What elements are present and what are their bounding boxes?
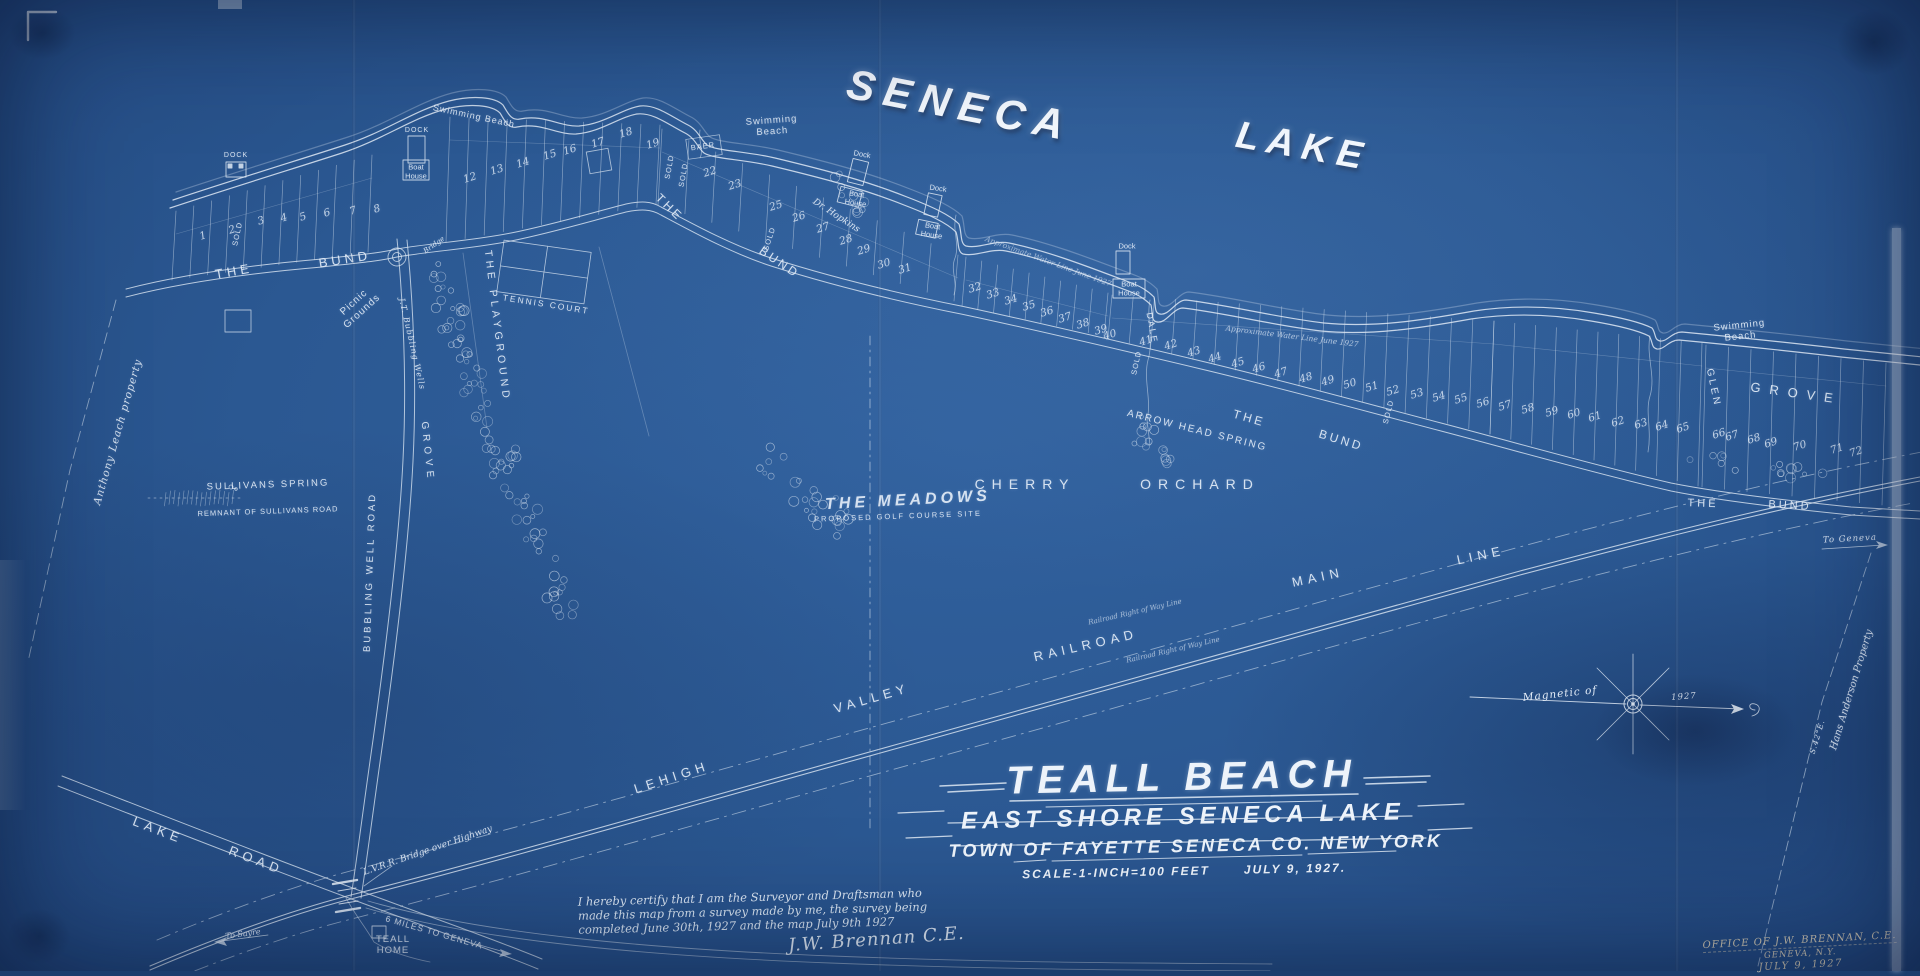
lot-number-60: 60 (1566, 406, 1582, 422)
map-label-lvrr-bridge: L.V.R.R. Bridge over Highway (362, 824, 494, 878)
lot-number-31: 31 (897, 261, 913, 277)
lot-number-55: 55 (1453, 391, 1469, 407)
map-label-boathouse-label-4: Boat House (920, 221, 944, 241)
lot-number-3: 3 (256, 214, 266, 228)
map-label-the-bund-3-the: THE (1231, 408, 1267, 430)
lot-number-52: 52 (1385, 383, 1401, 399)
lot-number-56: 56 (1475, 395, 1491, 411)
lot-number-64: 64 (1654, 418, 1670, 434)
lot-number-38: 38 (1075, 316, 1091, 332)
lot-number-71: 71 (1829, 441, 1845, 457)
map-label-railroad-lehigh: LEHIGH (632, 759, 711, 797)
map-label-grove-right: GROVE (1749, 380, 1842, 408)
lot-number-37: 37 (1057, 310, 1073, 326)
map-label-bubbling-wells-grove: J.T. Bubbling Wells (397, 297, 427, 391)
lot-number-62: 62 (1610, 414, 1626, 430)
lot-number-59: 59 (1544, 404, 1560, 420)
lot-number-58: 58 (1520, 401, 1536, 417)
lot-number-48: 48 (1298, 370, 1314, 386)
map-label-dock-label-3: Dock (853, 149, 871, 160)
map-label-water-line-2: Approximate Water Line June 1927 (1225, 325, 1359, 350)
map-label-dock-label-1: DOCK (224, 152, 248, 160)
lot-number-25: 25 (768, 198, 784, 214)
lot-number-18: 18 (618, 125, 634, 141)
lot-number-5: 5 (298, 210, 308, 224)
lot-number-28: 28 (838, 232, 854, 248)
lot-number-63: 63 (1633, 416, 1649, 432)
map-label-the-bund-4-the: THE (1687, 497, 1718, 511)
map-label-teall-home: TEALL HOME (376, 935, 410, 957)
lot-number-1: 1 (198, 229, 208, 243)
lot-number-14: 14 (515, 155, 531, 171)
map-title: TEALL BEACH (947, 751, 1418, 805)
lot-number-16: 16 (562, 142, 578, 158)
lot-number-27: 27 (815, 220, 831, 236)
lot-number-61: 61 (1587, 409, 1603, 425)
lot-number-70: 70 (1792, 438, 1808, 454)
lot-number-67: 67 (1724, 428, 1740, 444)
lot-number-36: 36 (1039, 304, 1055, 320)
map-label-railroad-main: MAIN (1291, 565, 1345, 591)
lot-number-53: 53 (1409, 386, 1425, 402)
lot-number-6: 6 (322, 206, 332, 220)
map-label-the-bund-4-bund: BUND (1768, 499, 1812, 514)
date-text: JULY 9, 1927. (1244, 861, 1347, 877)
map-subtitle-1: EAST SHORE SENECA LAKE (948, 798, 1418, 836)
map-label-bubbling-wells-grove-2: GROVE (418, 421, 436, 483)
map-label-glen: GLEN (1703, 368, 1722, 409)
lot-number-47: 47 (1273, 365, 1289, 381)
map-label-bearing-s42e: S.42°E. (1809, 719, 1828, 755)
lot-number-46: 46 (1251, 360, 1267, 376)
map-label-leach-property: Anthony Leach property (91, 358, 144, 507)
map-label-swimming-beach-3: Swimming Beach (1713, 318, 1767, 345)
lot-number-49: 49 (1320, 373, 1336, 389)
lot-number-54: 54 (1431, 389, 1447, 405)
lot-number-12: 12 (462, 170, 478, 186)
lot-number-43: 43 (1186, 344, 1202, 360)
lot-number-68: 68 (1746, 431, 1762, 447)
lot-number-19: 19 (645, 136, 661, 152)
map-label-the-bund-2-the: THE (652, 192, 685, 225)
map-label-dock-label-2: DOCK (405, 127, 429, 135)
compass-year: 1927 (1671, 691, 1697, 703)
lot-number-51: 51 (1364, 379, 1380, 395)
map-label-sold-2: SOLD (664, 154, 677, 180)
map-label-boathouse-label-3: Boat House (844, 189, 868, 209)
map-label-orchard: ORCHARD (1140, 476, 1260, 492)
map-label-swimming-beach-1: Swimming Beach (432, 102, 516, 129)
map-label-boathouse-label-5: Boat House (1118, 280, 1140, 297)
lot-number-7: 7 (348, 204, 358, 218)
map-label-swimming-beach-2: Swimming Beach (745, 114, 798, 139)
map-label-tennis-court: TENNIS COURT (502, 293, 590, 316)
map-label-the-playground: THE PLAYGROUND (482, 250, 513, 403)
lot-number-69: 69 (1763, 435, 1779, 451)
map-label-baer: BAER (690, 141, 715, 153)
map-label-bridge-label: Bridge (422, 235, 446, 255)
map-label-railroad-railroad: RAILROAD (1032, 627, 1139, 666)
map-label-the-bund-1-bund: BUND (318, 248, 373, 271)
lot-number-50: 50 (1342, 376, 1358, 392)
map-label-lake-road-lake: LAKE (130, 814, 185, 847)
map-label-picnic-grounds: Picnic Grounds (333, 283, 382, 330)
map-label-water-line-1: Approximate Water Line June 1927 (984, 235, 1113, 289)
title-block: TEALL BEACH EAST SHORE SENECA LAKE TOWN … (947, 751, 1419, 883)
lot-number-65: 65 (1675, 420, 1691, 436)
map-label-dock-label-4: Dock (929, 184, 947, 195)
map-label-lake-road-road: ROAD (226, 844, 285, 879)
lot-number-4: 4 (279, 211, 289, 225)
lot-number-42: 42 (1163, 337, 1179, 353)
lot-number-35: 35 (1021, 298, 1037, 314)
map-label-railroad-valley: VALLEY (832, 681, 911, 717)
lot-number-40: 40 (1102, 327, 1118, 343)
map-label-sold-6: SOLD (1382, 399, 1396, 425)
blueprint-paper: Swimming BeachSwimming BeachSwimming Bea… (0, 0, 1920, 971)
lot-number-33: 33 (985, 286, 1001, 302)
map-subtitle-2: TOWN OF FAYETTE SENECA CO. NEW YORK (948, 831, 1418, 862)
lot-number-15: 15 (542, 147, 558, 163)
lot-number-22: 22 (702, 164, 718, 180)
lot-number-44: 44 (1207, 350, 1223, 366)
map-label-railroad-line: LINE (1456, 544, 1507, 569)
map-label-sold-4: SOLD (762, 226, 778, 252)
lot-number-32: 32 (967, 280, 983, 296)
lot-number-45: 45 (1230, 355, 1246, 371)
map-label-to-geneva: To Geneva (1823, 534, 1877, 547)
map-label-anderson-property: Hans Anderson Property (1828, 628, 1876, 751)
lot-number-29: 29 (856, 242, 872, 258)
lot-number-8: 8 (372, 202, 382, 216)
map-label-the-bund-2-bund: BUND (756, 244, 802, 281)
lot-number-17: 17 (590, 135, 606, 151)
lot-number-23: 23 (727, 177, 743, 193)
map-label-sold-3: SOLD (678, 162, 691, 188)
map-label-the-bund-1-the: THE (214, 261, 254, 282)
map-label-bubbling-well-road: BUBBLING WELL ROAD (363, 492, 380, 653)
map-label-sullivans-spring: SULLIVANS SPRING (207, 478, 330, 493)
map-label-sold-5: SOLD (1130, 350, 1144, 376)
map-label-row-line-1: Railroad Right of Way Line (1088, 597, 1183, 626)
lot-number-26: 26 (791, 209, 807, 225)
map-label-cherry: CHERRY (975, 476, 1076, 492)
map-label-sullivans-road: REMNANT OF SULLIVANS ROAD (197, 505, 338, 519)
lot-number-34: 34 (1003, 292, 1019, 308)
map-label-dock-label-5: Dock (1118, 243, 1135, 252)
map-label-row-line-2: Railroad Right of Way Line (1126, 635, 1221, 664)
map-label-to-sayre: To Sayre (225, 927, 261, 941)
lot-number-57: 57 (1497, 398, 1513, 414)
lot-number-72: 72 (1848, 444, 1864, 460)
map-label-the-bund-3-bund: BUND (1317, 428, 1365, 455)
lot-number-30: 30 (876, 256, 892, 272)
lot-number-13: 13 (489, 162, 505, 178)
map-label-boathouse-label-2: Boat House (405, 163, 427, 180)
